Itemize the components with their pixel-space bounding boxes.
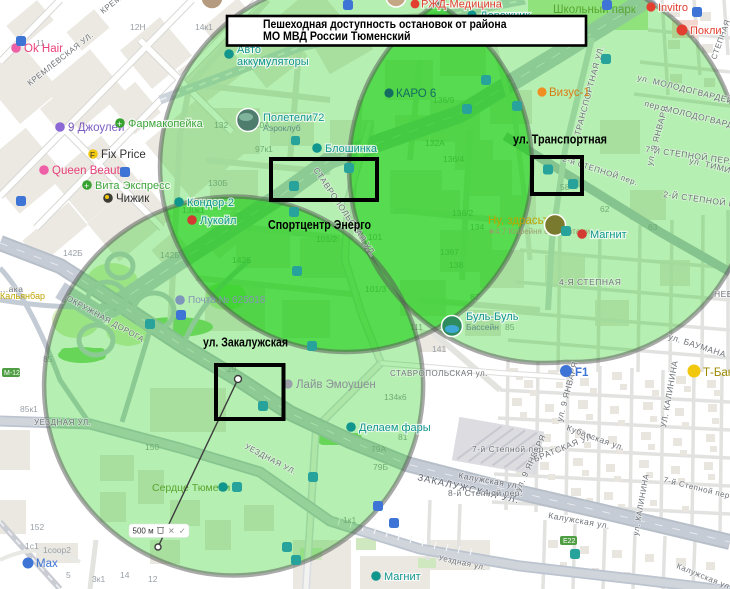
svg-text:МО МВД России Тюменский: МО МВД России Тюменский <box>263 29 411 43</box>
svg-text:Блошинка: Блошинка <box>325 143 378 155</box>
svg-text:14: 14 <box>120 570 130 580</box>
svg-text:М-12: М-12 <box>4 370 20 377</box>
svg-text:ул. Транспортная: ул. Транспортная <box>513 133 607 147</box>
svg-text:Max: Max <box>36 558 58 570</box>
svg-text:Визус-1: Визус-1 <box>549 87 590 99</box>
svg-text:Т-Бан: Т-Бан <box>703 367 730 379</box>
svg-text:Магнит: Магнит <box>384 571 421 583</box>
svg-text:F: F <box>90 151 95 160</box>
svg-text:Queen Beauty: Queen Beauty <box>52 165 126 177</box>
svg-text:Fix Price: Fix Price <box>101 149 146 161</box>
svg-text:8-й Степной пер.: 8-й Степной пер. <box>448 488 523 498</box>
svg-text:★4.7 Кофейня с десертами: ★4.7 Кофейня с десертами <box>488 227 590 236</box>
svg-text:Е22: Е22 <box>563 538 576 545</box>
svg-text:85к1: 85к1 <box>20 404 38 414</box>
svg-text:Лукойл: Лукойл <box>200 215 236 227</box>
svg-text:РЖД-Медицина: РЖД-Медицина <box>421 0 503 11</box>
svg-text:СТАВРОПОЛЬСКАЯ ул.: СТАВРОПОЛЬСКАЯ ул. <box>390 369 488 378</box>
svg-text:141: 141 <box>432 344 446 354</box>
svg-text:Спортцентр Энерго: Спортцентр Энерго <box>268 218 371 232</box>
svg-text:3к1: 3к1 <box>92 574 105 584</box>
svg-text:Почта № 625018: Почта № 625018 <box>188 295 266 306</box>
svg-text:142Б: 142Б <box>63 248 83 258</box>
svg-text:12Н: 12Н <box>130 22 146 32</box>
svg-text:ул. Закалужская: ул. Закалужская <box>203 336 288 350</box>
svg-text:+: + <box>117 119 122 129</box>
svg-text:12: 12 <box>148 574 158 584</box>
svg-text:1соор2: 1соор2 <box>43 545 71 555</box>
svg-text:Лайв Эмоушен: Лайв Эмоушен <box>296 379 376 391</box>
svg-text:Чижик: Чижик <box>116 193 150 205</box>
svg-text:УЕЗДНАЯ УЛ.: УЕЗДНАЯ УЛ. <box>34 418 91 427</box>
svg-text:Кальянбар: Кальянбар <box>0 291 45 301</box>
svg-text:Вита Экспресс: Вита Экспресс <box>95 180 171 192</box>
svg-text:152: 152 <box>30 522 44 532</box>
svg-text:Делаем фары: Делаем фары <box>359 422 431 434</box>
svg-text:КАРО 6: КАРО 6 <box>396 88 436 100</box>
svg-text:1с1: 1с1 <box>25 541 39 551</box>
svg-text:F1: F1 <box>575 367 589 379</box>
svg-text:Магнит: Магнит <box>590 229 627 241</box>
svg-text:Фармакопейка: Фармакопейка <box>128 118 204 130</box>
svg-text:+: + <box>84 181 89 191</box>
svg-text:аккумуляторы: аккумуляторы <box>237 56 309 68</box>
svg-text:Покли: Покли <box>690 25 722 37</box>
svg-text:НЕВСКАЯ: НЕВСКАЯ <box>714 289 730 299</box>
svg-text:Кондор-2: Кондор-2 <box>187 197 234 209</box>
svg-text:Бассейн: Бассейн <box>466 322 499 332</box>
svg-text:Школьный парк: Школьный парк <box>553 4 637 16</box>
svg-text:4-Я СТЕПНАЯ: 4-Я СТЕПНАЯ <box>559 277 621 287</box>
svg-text:Invitro: Invitro <box>658 2 688 14</box>
svg-text:✓: ✓ <box>179 527 186 536</box>
svg-text:5: 5 <box>66 570 71 580</box>
svg-text:Аэроклуб: Аэроклуб <box>263 123 301 133</box>
svg-text:500 м: 500 м <box>133 527 154 536</box>
svg-text:Ok Hair: Ok Hair <box>24 43 63 55</box>
svg-text:✕: ✕ <box>168 527 175 536</box>
svg-text:14к1: 14к1 <box>195 22 213 32</box>
